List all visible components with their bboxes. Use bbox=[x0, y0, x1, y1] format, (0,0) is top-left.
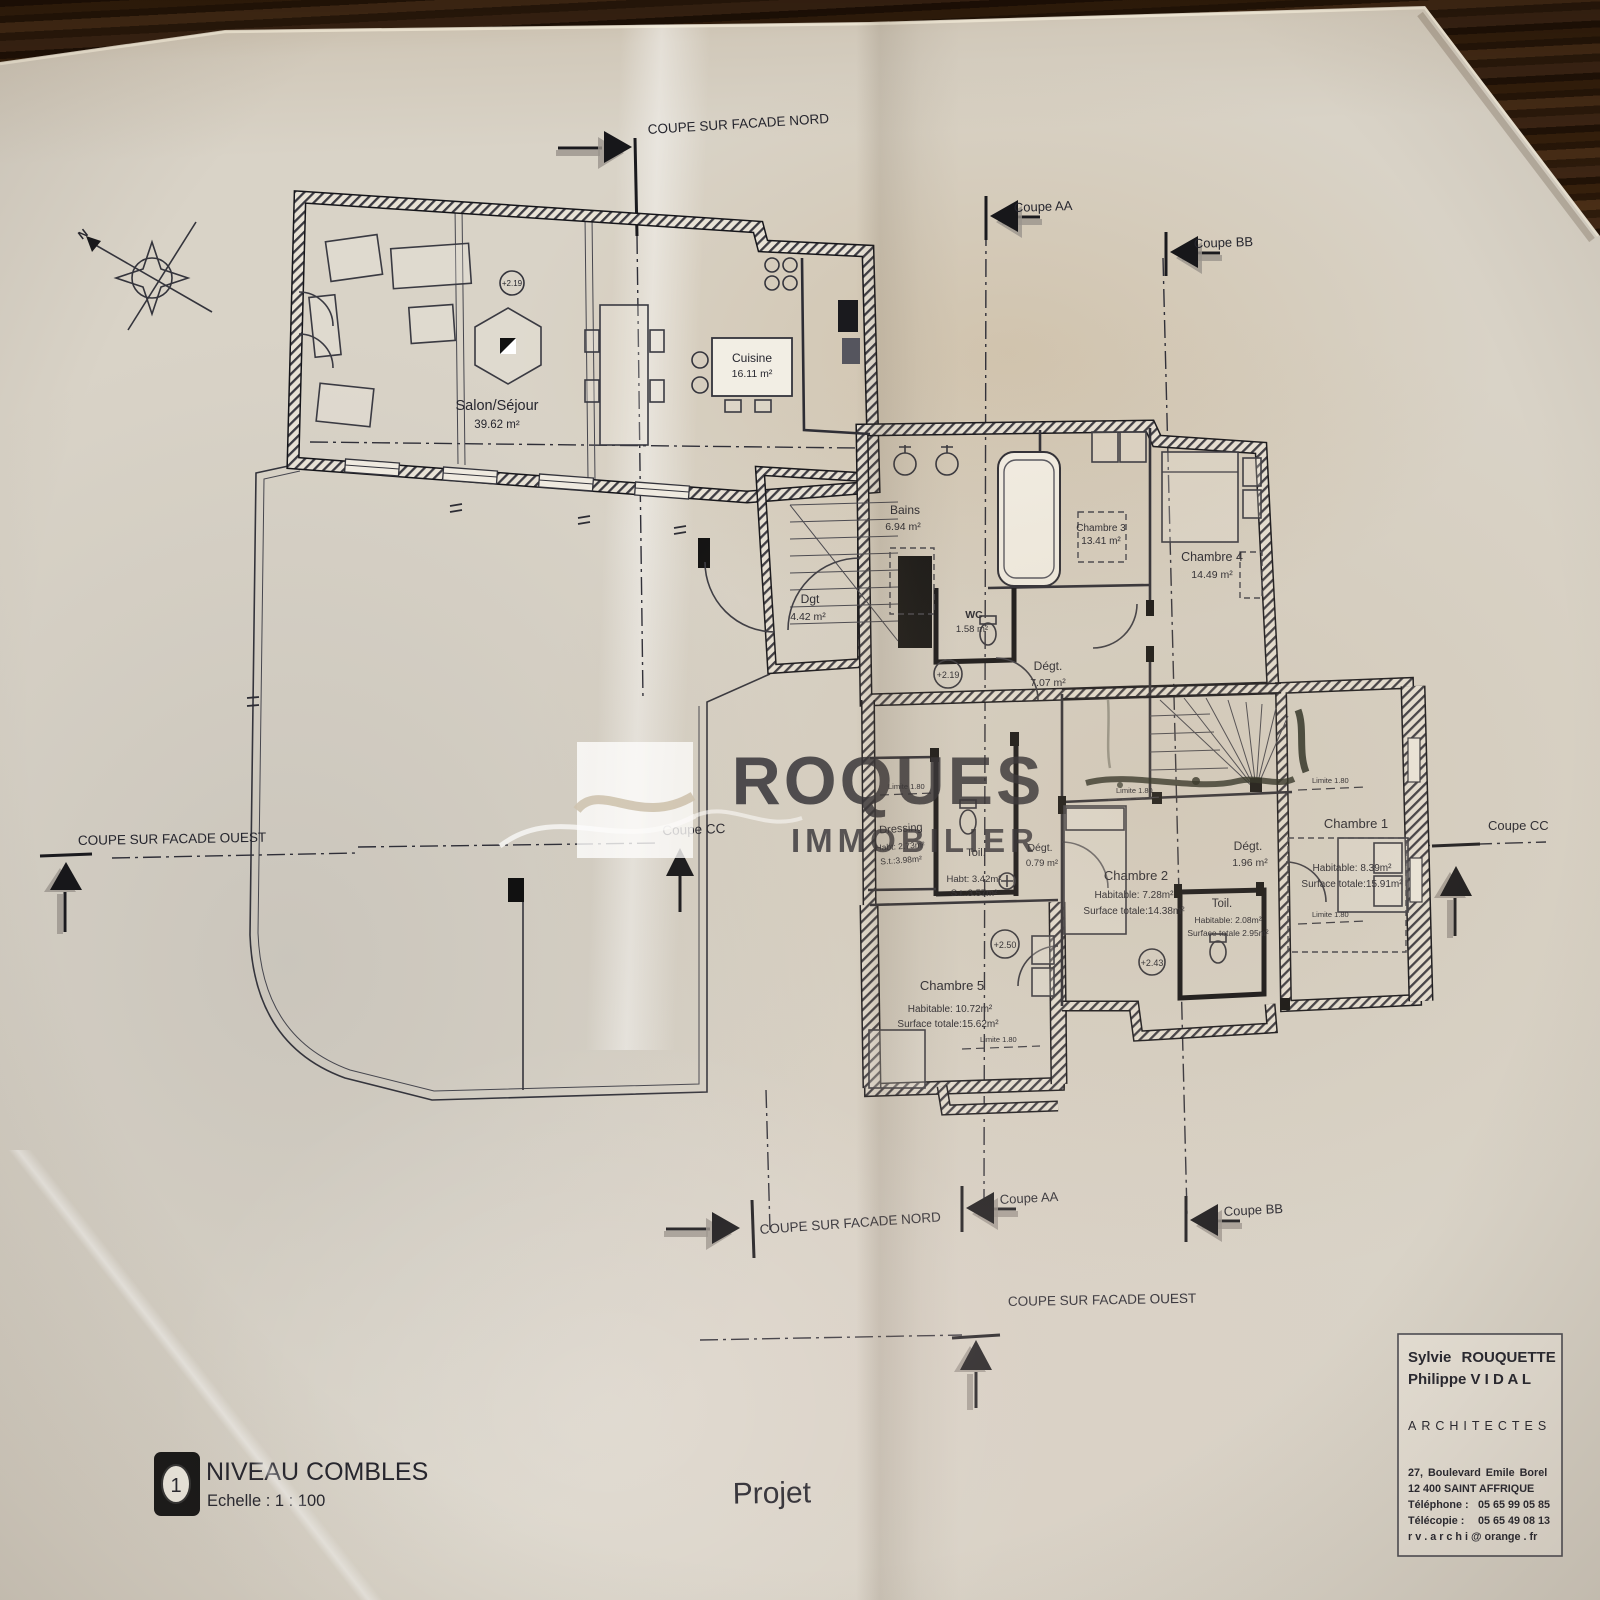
architect-email: r v . a r c h i @ orange . fr bbox=[1408, 1531, 1538, 1543]
watermark: ROQUES IMMOBILIER bbox=[500, 742, 1044, 859]
limite-label: Limite 1.80 bbox=[1312, 910, 1349, 919]
watermark-name: ROQUES bbox=[732, 743, 1045, 819]
facade-ouest-arrow-left bbox=[40, 854, 92, 934]
chambre2-surf: Surface totale:14.38m² bbox=[1083, 906, 1185, 917]
degt0-area: 0.79 m² bbox=[1026, 858, 1058, 869]
wc-name: WC bbox=[965, 609, 983, 621]
facade-nord-arrow-top bbox=[556, 131, 632, 169]
coupe-cc-label-right: Coupe CC bbox=[1488, 818, 1549, 833]
chambre3-name: Chambre 3 bbox=[1076, 523, 1126, 534]
chambre1-name: Chambre 1 bbox=[1324, 816, 1388, 831]
coupe-bb-label-bottom: Coupe BB bbox=[1223, 1201, 1283, 1219]
degt7-name: Dégt. bbox=[1034, 659, 1063, 673]
dgt-name: Dgt bbox=[801, 592, 820, 606]
facade-ouest-label-left: COUPE SUR FACADE OUEST bbox=[78, 830, 267, 848]
drawing-name: NIVEAU COMBLES bbox=[206, 1458, 428, 1486]
architect-1: Sylvie ROUQUETTE bbox=[1408, 1349, 1556, 1366]
architect-profession: ARCHITECTES bbox=[1408, 1419, 1551, 1433]
chambre3-area: 13.41 m² bbox=[1081, 536, 1121, 547]
wc-area: 1.58 m² bbox=[956, 624, 988, 635]
level-palier: +2.19 bbox=[937, 670, 960, 680]
architect-2: Philippe V I D A L bbox=[1408, 1371, 1531, 1388]
project-label: Projet bbox=[732, 1476, 812, 1510]
facade-nord-arrow-bottom bbox=[664, 1200, 754, 1258]
facade-ouest-arrow-bottom bbox=[952, 1335, 1000, 1410]
toil-ouest-surf: S.t.:3.57m² bbox=[951, 888, 997, 899]
drawing-scale: Echelle : 1 : 100 bbox=[207, 1492, 325, 1510]
architect-phone: 05 65 99 05 85 bbox=[1478, 1499, 1550, 1511]
limite-label: Limite 1.80 bbox=[980, 1035, 1017, 1044]
chambre2-hab: Habitable: 7.28m² bbox=[1095, 890, 1175, 901]
architect-fax: 05 65 49 08 13 bbox=[1478, 1515, 1550, 1527]
facade-nord-label-top: COUPE SUR FACADE NORD bbox=[647, 111, 829, 137]
cuisine-area: 16.11 m² bbox=[732, 368, 773, 380]
facade-nord-label-bottom: COUPE SUR FACADE NORD bbox=[759, 1209, 941, 1237]
facade-ouest-label-bottom: COUPE SUR FACADE OUEST bbox=[1008, 1291, 1197, 1309]
architect-address-1: 27, Boulevard Emile Borel bbox=[1408, 1467, 1547, 1479]
watermark-subtitle: IMMOBILIER bbox=[791, 822, 1039, 859]
coupe-cc-arrow-right bbox=[1432, 844, 1480, 938]
chambre1-hab: Habitable: 8.39m² bbox=[1313, 863, 1393, 874]
chambre5-hab: Habitable: 10.72m² bbox=[908, 1004, 993, 1015]
cuisine-name: Cuisine bbox=[732, 351, 772, 365]
degt1-name: Dégt. bbox=[1234, 839, 1263, 853]
chambre4-area: 14.49 m² bbox=[1191, 569, 1233, 581]
architect-fax-label: Télécopie : bbox=[1408, 1515, 1464, 1527]
degt1-area: 1.96 m² bbox=[1232, 857, 1268, 869]
compass-rose: N bbox=[75, 222, 212, 330]
salon-name: Salon/Séjour bbox=[455, 398, 538, 414]
coupe-aa-label-bottom: Coupe AA bbox=[999, 1189, 1059, 1207]
chambre2-name: Chambre 2 bbox=[1104, 868, 1168, 883]
architect-title-block: Sylvie ROUQUETTE Philippe V I D A L ARCH… bbox=[1398, 1334, 1562, 1556]
level-salon: +2.19 bbox=[502, 279, 523, 288]
dgt-area: 4.42 m² bbox=[790, 611, 826, 623]
chambre4-name: Chambre 4 bbox=[1181, 550, 1243, 564]
limite-label: Limite 1.80 bbox=[1312, 776, 1349, 785]
architect-phone-label: Téléphone : bbox=[1408, 1499, 1469, 1511]
drawing-index: 1 bbox=[170, 1475, 181, 1497]
coupe-aa-label-top: Coupe AA bbox=[1014, 198, 1073, 215]
toil-est-name: Toil. bbox=[1212, 898, 1232, 910]
plan-paper-sheet: Limite 1.80 Limite 1.80 Limite 1.80 Limi… bbox=[0, 0, 1600, 1600]
level-chambre5: +2.50 bbox=[994, 940, 1017, 950]
photo-of-floor-plan: Limite 1.80 Limite 1.80 Limite 1.80 Limi… bbox=[0, 0, 1600, 1600]
level-toilettes: +2.43 bbox=[1141, 958, 1164, 968]
architect-address-2: 12 400 SAINT AFFRIQUE bbox=[1408, 1483, 1534, 1495]
bains-area: 6.94 m² bbox=[885, 521, 921, 533]
chambre5-name: Chambre 5 bbox=[920, 978, 984, 993]
degt7-area: 7.07 m² bbox=[1030, 677, 1066, 689]
exterior-walls bbox=[293, 197, 1421, 1110]
bains-name: Bains bbox=[890, 503, 920, 517]
toil-est-surf: Surface totale 2.95m² bbox=[1187, 928, 1268, 938]
floor-plan-drawing: Limite 1.80 Limite 1.80 Limite 1.80 Limi… bbox=[0, 0, 1600, 1600]
chambre5-surf: Surface totale:15.62m² bbox=[897, 1019, 999, 1030]
salon-area: 39.62 m² bbox=[474, 419, 520, 431]
furniture bbox=[299, 235, 860, 445]
coupe-bb-label-top: Coupe BB bbox=[1194, 234, 1254, 251]
drawing-title: 1 NIVEAU COMBLES Echelle : 1 : 100 bbox=[154, 1452, 428, 1516]
toil-ouest-hab: Habt: 3.42m² bbox=[947, 874, 1002, 885]
chambre1-surf: Surface totale:15.91m² bbox=[1301, 879, 1403, 890]
toil-est-hab: Habitable: 2.08m² bbox=[1194, 915, 1261, 925]
